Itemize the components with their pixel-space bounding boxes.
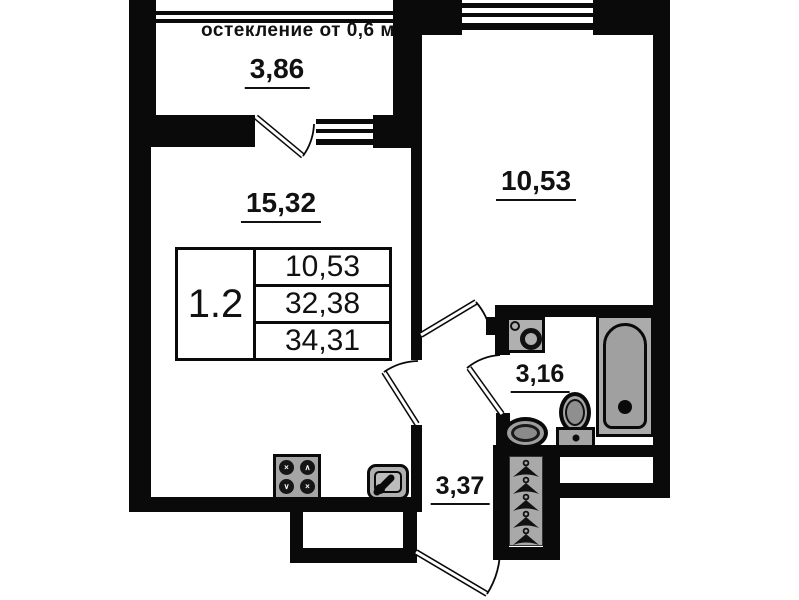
wall — [393, 0, 422, 148]
washbasin-bowl — [511, 424, 540, 442]
room-area-label: 10,53 — [496, 167, 576, 195]
bathroom-door — [467, 355, 502, 414]
apartment-floor-plan: остекление от 0,6 м 3,86 15,32 10,53 3,1… — [0, 0, 799, 600]
washing-machine-drum — [520, 328, 542, 350]
legend-row-apartment-area: 32,38 — [256, 284, 389, 321]
stove-icon: × ∧ ∨ × — [273, 454, 321, 500]
balcony-area-label: 3,86 — [245, 55, 310, 83]
window-line — [462, 3, 593, 8]
wall — [493, 547, 560, 560]
washbasin-icon — [503, 417, 548, 449]
door-swing-arc — [467, 355, 500, 368]
unit-number: 1.2 — [178, 250, 256, 358]
sink-basin — [374, 471, 402, 493]
legend-row-total-area: 34,31 — [256, 321, 389, 358]
wardrobe-icon — [509, 456, 543, 546]
window-line — [462, 13, 593, 17]
toilet-tank — [556, 427, 595, 448]
wall — [653, 0, 670, 498]
bathtub-drain — [618, 400, 632, 414]
duct-niche — [303, 512, 403, 548]
stove-burner: × — [300, 479, 315, 494]
wall — [129, 147, 151, 510]
window-line — [316, 119, 374, 124]
duct-niche — [560, 457, 653, 483]
stove-burner: ∨ — [279, 479, 294, 494]
hallway-area-label: 3,37 — [431, 474, 490, 499]
kitchen-sink-icon — [367, 464, 409, 500]
window-line — [316, 139, 374, 145]
living-room-area-label: 15,32 — [241, 189, 321, 217]
bathtub-icon — [596, 315, 654, 437]
window-line — [316, 129, 374, 133]
living-room-door — [384, 361, 418, 424]
balcony-glazing-line — [155, 11, 397, 15]
wall — [411, 425, 422, 512]
toilet-flush-button — [572, 434, 579, 441]
wall — [129, 115, 255, 147]
wall — [493, 445, 509, 560]
stove-burner: × — [279, 460, 294, 475]
toilet-seat — [565, 399, 585, 426]
door-swing-arc — [303, 124, 314, 156]
wall — [543, 445, 560, 560]
wall — [422, 0, 462, 35]
legend-row-living-area: 10,53 — [256, 250, 389, 284]
washing-machine-detergent — [510, 321, 520, 331]
bathtub-basin — [603, 323, 647, 429]
room-door — [421, 302, 491, 335]
washing-machine-icon — [506, 317, 545, 353]
balcony-door — [256, 117, 314, 156]
wall — [411, 148, 422, 360]
door-swing-arc — [384, 361, 418, 372]
entrance-door — [416, 546, 500, 594]
bathroom-area-label: 3,16 — [511, 362, 570, 387]
window-line — [462, 23, 593, 30]
apartment-legend-table: 1.2 10,53 32,38 34,31 — [175, 247, 392, 361]
balcony-glazing-note: остекление от 0,6 м — [201, 21, 395, 40]
stove-burner: ∧ — [300, 460, 315, 475]
